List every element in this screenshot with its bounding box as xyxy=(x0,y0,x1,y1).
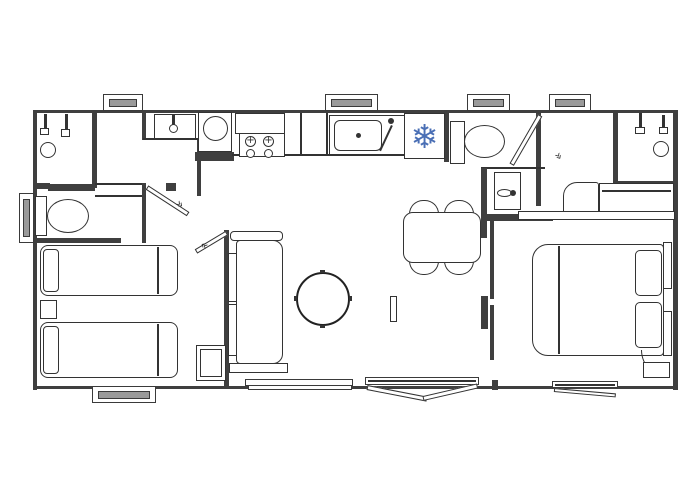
round-table-tick-n xyxy=(320,270,325,273)
hob-burner-cross-2: + xyxy=(263,135,274,147)
picture-window-inner xyxy=(248,385,352,390)
shower-right-wall-left xyxy=(613,112,618,186)
nightstand xyxy=(40,300,57,319)
shower-right-mixer xyxy=(659,127,668,134)
floor-vent xyxy=(390,296,397,322)
sink-tap-dot xyxy=(388,118,394,124)
wc-left-wall-bottom xyxy=(33,238,121,243)
master-wall-lower xyxy=(490,305,494,360)
window-top-1-glass xyxy=(109,99,137,107)
sink-drain-dot xyxy=(356,133,361,138)
tv xyxy=(481,296,488,329)
round-table-tick-e xyxy=(349,296,352,301)
twin-bed-2-line xyxy=(157,324,159,376)
double-bed-pillow-1 xyxy=(635,250,662,296)
washer-drum xyxy=(203,116,228,141)
entry-door-leaf xyxy=(554,388,616,397)
round-table-tick-s xyxy=(320,325,325,328)
dining-chair-3 xyxy=(409,261,439,275)
shower-right-head-stem xyxy=(639,113,642,128)
toilet-mid-tank xyxy=(450,121,465,164)
bed-step xyxy=(643,362,670,378)
patio-door-frame-line xyxy=(368,380,476,382)
toilet-left-tank xyxy=(35,196,47,236)
cabinet-divider-2 xyxy=(326,113,328,155)
hob-burner-cross-1: + xyxy=(245,135,256,147)
twin-bed-1-pillow xyxy=(43,249,59,292)
shower-right-head xyxy=(635,127,645,134)
round-table xyxy=(296,272,350,326)
cabinet-divider-1 xyxy=(300,113,302,155)
master-wall-upper xyxy=(490,221,494,299)
dining-chair-4 xyxy=(444,261,474,275)
sofa-seat xyxy=(236,240,283,364)
upper-cupboard xyxy=(235,113,285,134)
master-wardrobe-line xyxy=(602,190,671,192)
shower-left-mixer-stem xyxy=(65,114,68,130)
round-table-tick-w xyxy=(294,296,297,301)
right-wall xyxy=(673,110,678,390)
fridge-snowflake-icon: ❄ xyxy=(404,113,445,159)
window-top-2-glass xyxy=(331,99,372,107)
sofa-base xyxy=(229,363,288,373)
door-stop xyxy=(492,380,498,390)
hall-track-line-top xyxy=(95,183,143,185)
entry-door-line xyxy=(555,384,615,386)
hall-wall-lower xyxy=(142,183,146,243)
floorplan: ++»»»❄ xyxy=(0,0,700,500)
twin-bed-2-pillow xyxy=(43,326,59,374)
wc-left-wall-top xyxy=(33,183,50,189)
nook-top-line xyxy=(481,167,545,169)
window-bottom-glass xyxy=(98,391,150,399)
double-bed-line xyxy=(558,246,560,354)
left-wall xyxy=(33,110,37,390)
kitchen-peninsula-bar xyxy=(195,152,234,161)
shower-left-head-stem xyxy=(44,114,47,129)
shower-left-sill xyxy=(48,184,95,191)
twin-bed-1-line xyxy=(157,247,159,294)
window-left-glass xyxy=(23,199,30,237)
kitchen-basin-tap xyxy=(169,124,178,133)
window-top-3-glass xyxy=(473,99,504,107)
hob-burner-3 xyxy=(246,149,255,158)
shower-left-wall-right xyxy=(92,112,97,188)
dining-table xyxy=(403,212,481,263)
shower-left-drain xyxy=(40,142,56,158)
shower-left-head xyxy=(40,128,49,135)
hall-wall-upper xyxy=(142,112,146,140)
master-shelf-bar xyxy=(518,211,675,220)
nook-wall-left xyxy=(481,168,487,238)
shower-left-mixer xyxy=(61,129,70,137)
wash-tap-dot xyxy=(510,190,516,196)
headboard-1 xyxy=(663,242,672,289)
bedroom-chest-inner xyxy=(200,349,222,377)
kitchen-end-post xyxy=(166,183,176,191)
hall-track-line-bottom xyxy=(95,195,143,197)
window-top-4-glass xyxy=(555,99,585,107)
toilet-mid-bowl xyxy=(464,125,505,158)
shower-right-drain xyxy=(653,141,669,157)
toilet-left-bowl xyxy=(47,199,89,233)
double-bed-pillow-2 xyxy=(635,302,662,348)
hob-burner-4 xyxy=(264,149,273,158)
master-door-arrow: » xyxy=(548,145,570,167)
